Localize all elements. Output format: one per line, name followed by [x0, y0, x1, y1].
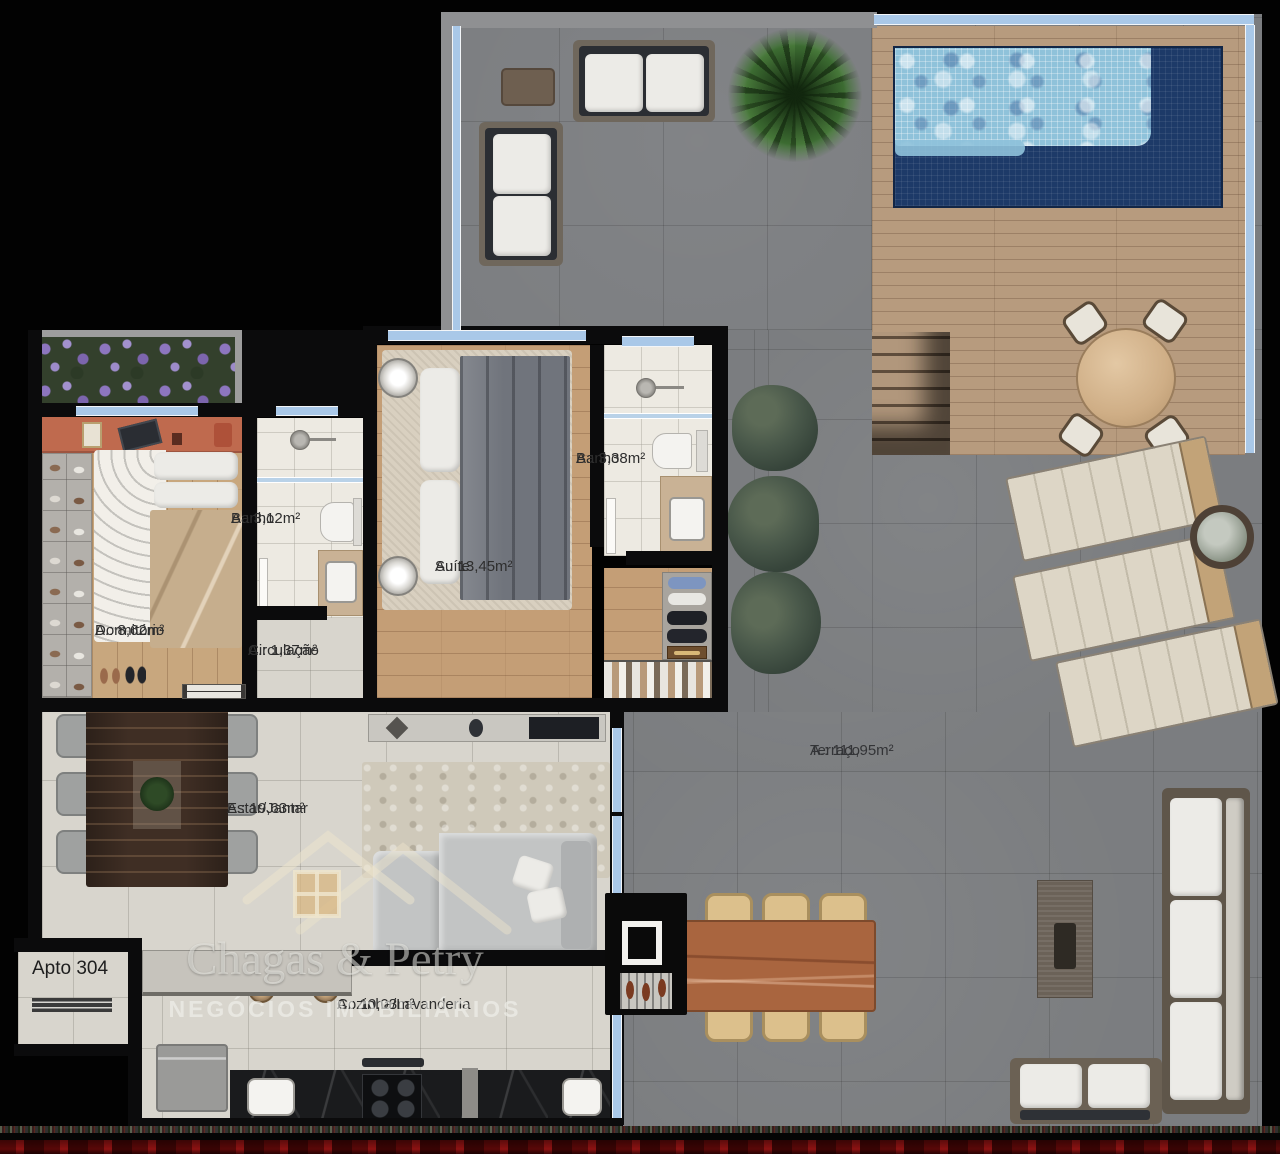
- entry-door-threshold: [32, 998, 112, 1012]
- single-bed: [150, 450, 242, 648]
- bottom-black-band: [0, 1133, 1280, 1140]
- floor-plan-canvas: Dormitório A.: 8,62m² Banho A.: 3,12m² C…: [0, 0, 1280, 1154]
- shower-head: [290, 430, 336, 450]
- bush: [727, 476, 819, 572]
- window-sill-symbol: [182, 684, 246, 699]
- closet-shoe-shelf: [662, 572, 712, 660]
- dining-chair: [56, 714, 90, 758]
- bush: [732, 385, 818, 471]
- terrace-window: [874, 14, 1254, 25]
- sofa: [373, 833, 597, 957]
- outdoor-sofa: [573, 40, 715, 122]
- room-area: A.: 1,37m²: [248, 642, 317, 659]
- bathroom-window: [276, 406, 338, 416]
- pool-shallow-ledge: [895, 140, 1025, 156]
- dining-chair: [224, 830, 258, 874]
- room-area: A.: 8,62m²: [95, 622, 164, 639]
- bedroom-window: [76, 406, 198, 416]
- counter-divider: [462, 1068, 478, 1122]
- living-window: [612, 816, 622, 896]
- kitchen-window: [612, 1014, 622, 1118]
- outdoor-sofa: [479, 122, 563, 266]
- shower-glass: [604, 413, 712, 419]
- dining-chair: [224, 714, 258, 758]
- pool-shallow-water: [895, 48, 1151, 146]
- outdoor-rug: [1037, 880, 1093, 998]
- wall: [257, 606, 327, 620]
- deck-round-table: [1076, 328, 1176, 428]
- wall: [242, 330, 363, 403]
- toilet: [652, 430, 708, 472]
- wall: [28, 330, 42, 952]
- shower-head: [636, 378, 686, 398]
- bottom-red-band: [0, 1140, 1280, 1154]
- wall: [352, 950, 612, 966]
- coffee-table: [501, 68, 555, 106]
- nightstand-lamp: [378, 358, 418, 398]
- range-hood: [362, 1058, 424, 1067]
- wardrobe-shoe-rack: [42, 453, 92, 698]
- room-circulacao-floor: [257, 618, 363, 710]
- room-area: A.: 3,12m²: [231, 510, 300, 527]
- desk-accent-wall: [42, 417, 242, 453]
- apartment-number-label: Apto 304: [20, 958, 120, 980]
- wall: [626, 551, 712, 565]
- wall: [28, 698, 728, 712]
- dining-table: [86, 703, 228, 887]
- kitchen-counter: [230, 1070, 462, 1122]
- terrace-wall: [441, 12, 452, 330]
- bottom-speckle-strip: [0, 1126, 1280, 1133]
- shower-glass: [257, 477, 363, 483]
- living-window: [612, 728, 622, 812]
- flower-planter: [28, 330, 242, 412]
- room-area: A.: 111,95m²: [810, 742, 894, 759]
- room-area: A.: 10,08m²: [337, 996, 415, 1013]
- deck-stairs: [872, 332, 950, 455]
- kitchen-counter: [478, 1070, 610, 1122]
- grill-structure: [605, 893, 687, 1015]
- terrace-window: [452, 26, 461, 330]
- bath-vanity: [660, 476, 712, 554]
- wall: [128, 938, 142, 1134]
- room-area: A.: 3,38m²: [576, 450, 645, 467]
- bush: [731, 572, 821, 674]
- breakfast-bar: [142, 950, 352, 996]
- outdoor-sofa-three-seat: [1162, 788, 1250, 1114]
- tv-sideboard: [368, 714, 606, 742]
- bathroom-window: [622, 336, 694, 347]
- wall: [14, 1044, 128, 1056]
- room-area: A.: 13,45m²: [435, 558, 513, 575]
- wall: [590, 345, 604, 547]
- round-planter: [1190, 505, 1254, 569]
- door-leaf: [606, 498, 616, 554]
- washing-machine: [156, 1044, 228, 1112]
- wall: [712, 326, 728, 712]
- closet-hanging-clothes: [604, 660, 712, 698]
- terrace-window: [1245, 25, 1255, 453]
- dining-chair: [56, 830, 90, 874]
- nightstand-lamp: [378, 556, 418, 596]
- outdoor-loveseat: [1010, 1058, 1162, 1124]
- terrace-wall: [441, 12, 877, 28]
- toilet: [320, 498, 362, 546]
- dining-chair: [56, 772, 90, 816]
- slippers: [94, 658, 146, 694]
- suite-window: [388, 330, 586, 341]
- wall: [363, 326, 377, 712]
- outdoor-dining-table: [680, 920, 876, 1012]
- room-area: A.: 19,63m²: [227, 800, 305, 817]
- wall: [14, 938, 128, 952]
- palm-tree: [728, 28, 862, 162]
